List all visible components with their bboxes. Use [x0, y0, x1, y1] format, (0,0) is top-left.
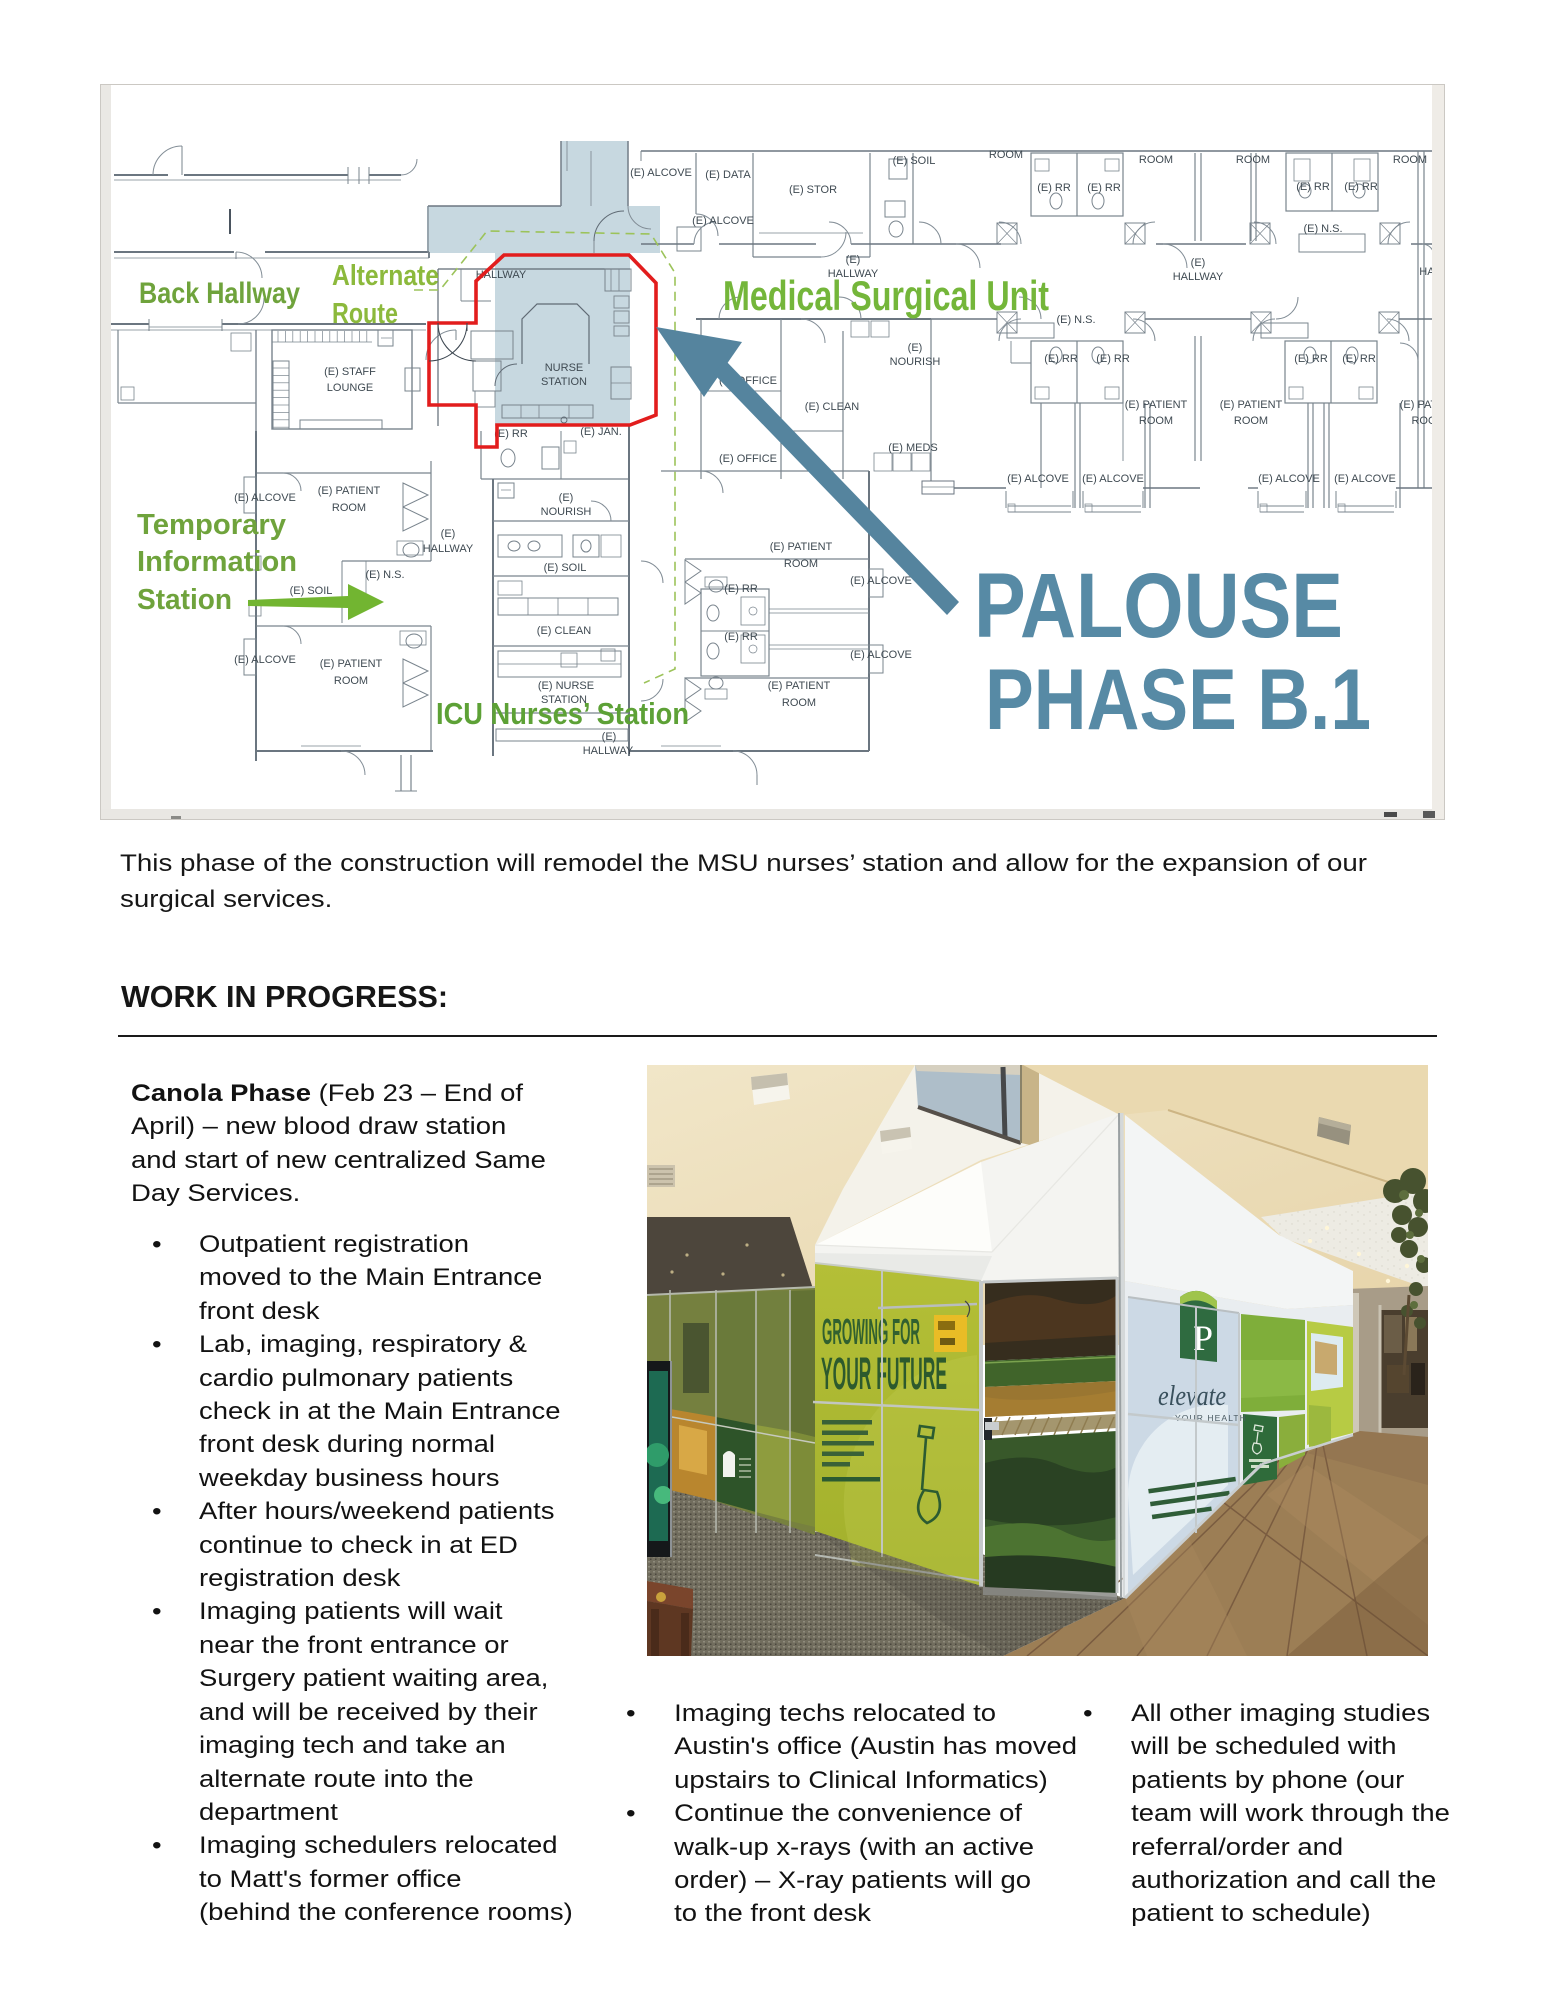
svg-text:(E) STOR: (E) STOR [789, 184, 837, 196]
svg-text:(E) ALCOVE: (E) ALCOVE [234, 654, 296, 666]
svg-text:(E) OFFICE: (E) OFFICE [719, 453, 777, 465]
svg-text:(E) MEDS: (E) MEDS [888, 442, 938, 454]
svg-text:ICU Nurses’ Station: ICU Nurses’ Station [436, 696, 689, 731]
svg-text:(E) NURSE: (E) NURSE [538, 680, 594, 692]
svg-text:(E) PATIENT: (E) PATIENT [320, 658, 383, 670]
svg-text:ROOM: ROOM [989, 149, 1023, 161]
svg-text:ROOM: ROOM [782, 697, 816, 709]
svg-text:(E): (E) [1191, 257, 1206, 269]
svg-text:(E) DATA: (E) DATA [705, 169, 751, 181]
svg-text:(E) PATIENT: (E) PATIENT [768, 680, 831, 692]
svg-text:(E) RR: (E) RR [1344, 181, 1378, 193]
svg-text:(E) ALCOVE: (E) ALCOVE [1334, 473, 1396, 485]
svg-text:(E) PATI: (E) PATI [1400, 399, 1432, 411]
svg-text:LOUNGE: LOUNGE [327, 382, 373, 394]
svg-text:(E) PATIENT: (E) PATIENT [318, 485, 381, 497]
svg-text:Alternate: Alternate [332, 260, 439, 292]
svg-text:(E) SOIL: (E) SOIL [544, 562, 587, 574]
svg-text:HALLWAY: HALLWAY [1173, 271, 1224, 283]
svg-text:(E) JAN.: (E) JAN. [580, 426, 622, 438]
svg-text:GROWING FOR: GROWING FOR [822, 1311, 920, 1352]
svg-text:elevate: elevate [1158, 1381, 1226, 1412]
svg-text:ROOM: ROOM [332, 502, 366, 514]
svg-text:Medical Surgical Unit: Medical Surgical Unit [723, 272, 1049, 319]
svg-text:YOUR FUTURE: YOUR FUTURE [821, 1348, 947, 1399]
svg-text:NURSE: NURSE [545, 362, 584, 374]
svg-text:PALOUSE: PALOUSE [974, 555, 1343, 657]
svg-text:ROOM: ROOM [784, 558, 818, 570]
svg-text:Information: Information [137, 546, 297, 578]
svg-text:(E) STAFF: (E) STAFF [324, 366, 376, 378]
svg-text:(E) ALCOVE: (E) ALCOVE [1082, 473, 1144, 485]
svg-text:Back Hallway: Back Hallway [139, 277, 300, 310]
svg-text:STATION: STATION [541, 376, 587, 388]
svg-text:(E) PATIENT: (E) PATIENT [1125, 399, 1188, 411]
svg-text:PHASE B.1: PHASE B.1 [985, 652, 1371, 748]
svg-text:(E) PATIENT: (E) PATIENT [1220, 399, 1283, 411]
svg-text:(E) ALCOVE: (E) ALCOVE [692, 215, 754, 227]
svg-text:(E) ALCOVE: (E) ALCOVE [630, 167, 692, 179]
svg-text:(E) RR: (E) RR [1037, 182, 1071, 194]
svg-text:(E) RR: (E) RR [724, 631, 758, 643]
svg-text:(E): (E) [559, 492, 574, 504]
svg-text:ROOM: ROOM [1236, 154, 1270, 166]
svg-text:(E): (E) [602, 731, 617, 743]
svg-text:(E) RR: (E) RR [1342, 353, 1376, 365]
svg-text:(E) ALCOVE: (E) ALCOVE [234, 492, 296, 504]
svg-text:(E) RR: (E) RR [1044, 353, 1078, 365]
svg-text:HALLWAY: HALLWAY [423, 543, 474, 555]
svg-text:Station: Station [137, 584, 232, 616]
svg-text:(E) RR: (E) RR [1087, 182, 1121, 194]
svg-text:(E) SOIL: (E) SOIL [893, 155, 936, 167]
svg-text:(E) ALCOVE: (E) ALCOVE [1258, 473, 1320, 485]
svg-text:NOURISH: NOURISH [541, 506, 592, 518]
svg-text:ROOM: ROOM [1234, 415, 1268, 427]
svg-text:Temporary: Temporary [137, 509, 286, 541]
svg-text:(E) ALCOVE: (E) ALCOVE [850, 575, 912, 587]
svg-text:(E): (E) [908, 342, 923, 354]
svg-text:(E) PATIENT: (E) PATIENT [770, 541, 833, 553]
svg-text:HAL: HAL [1419, 266, 1432, 278]
svg-text:Route: Route [332, 298, 398, 330]
svg-text:ROOM: ROOM [1139, 154, 1173, 166]
svg-text:NOURISH: NOURISH [890, 356, 941, 368]
svg-text:(E) CLEAN: (E) CLEAN [805, 401, 859, 413]
svg-text:(E) RR: (E) RR [1296, 181, 1330, 193]
svg-text:(E): (E) [846, 254, 861, 266]
svg-text:(E) ALCOVE: (E) ALCOVE [1007, 473, 1069, 485]
svg-text:(E) SOIL: (E) SOIL [290, 585, 333, 597]
svg-text:(E) RR: (E) RR [1294, 353, 1328, 365]
svg-text:(E) N.S.: (E) N.S. [365, 569, 404, 581]
svg-text:(E) RR: (E) RR [1096, 353, 1130, 365]
svg-text:HALLWAY: HALLWAY [583, 745, 634, 757]
svg-text:(E) N.S.: (E) N.S. [1056, 314, 1095, 326]
svg-text:(E) RR: (E) RR [724, 583, 758, 595]
svg-text:(E) N.S.: (E) N.S. [1303, 223, 1342, 235]
svg-text:ROOM: ROOM [1393, 154, 1427, 166]
svg-text:(E) CLEAN: (E) CLEAN [537, 625, 591, 637]
svg-text:ROO: ROO [1411, 415, 1432, 427]
svg-text:(E) ALCOVE: (E) ALCOVE [850, 649, 912, 661]
svg-text:ROOM: ROOM [334, 675, 368, 687]
svg-text:(E): (E) [441, 528, 456, 540]
svg-text:ROOM: ROOM [1139, 415, 1173, 427]
svg-text:(E) RR: (E) RR [494, 428, 528, 440]
